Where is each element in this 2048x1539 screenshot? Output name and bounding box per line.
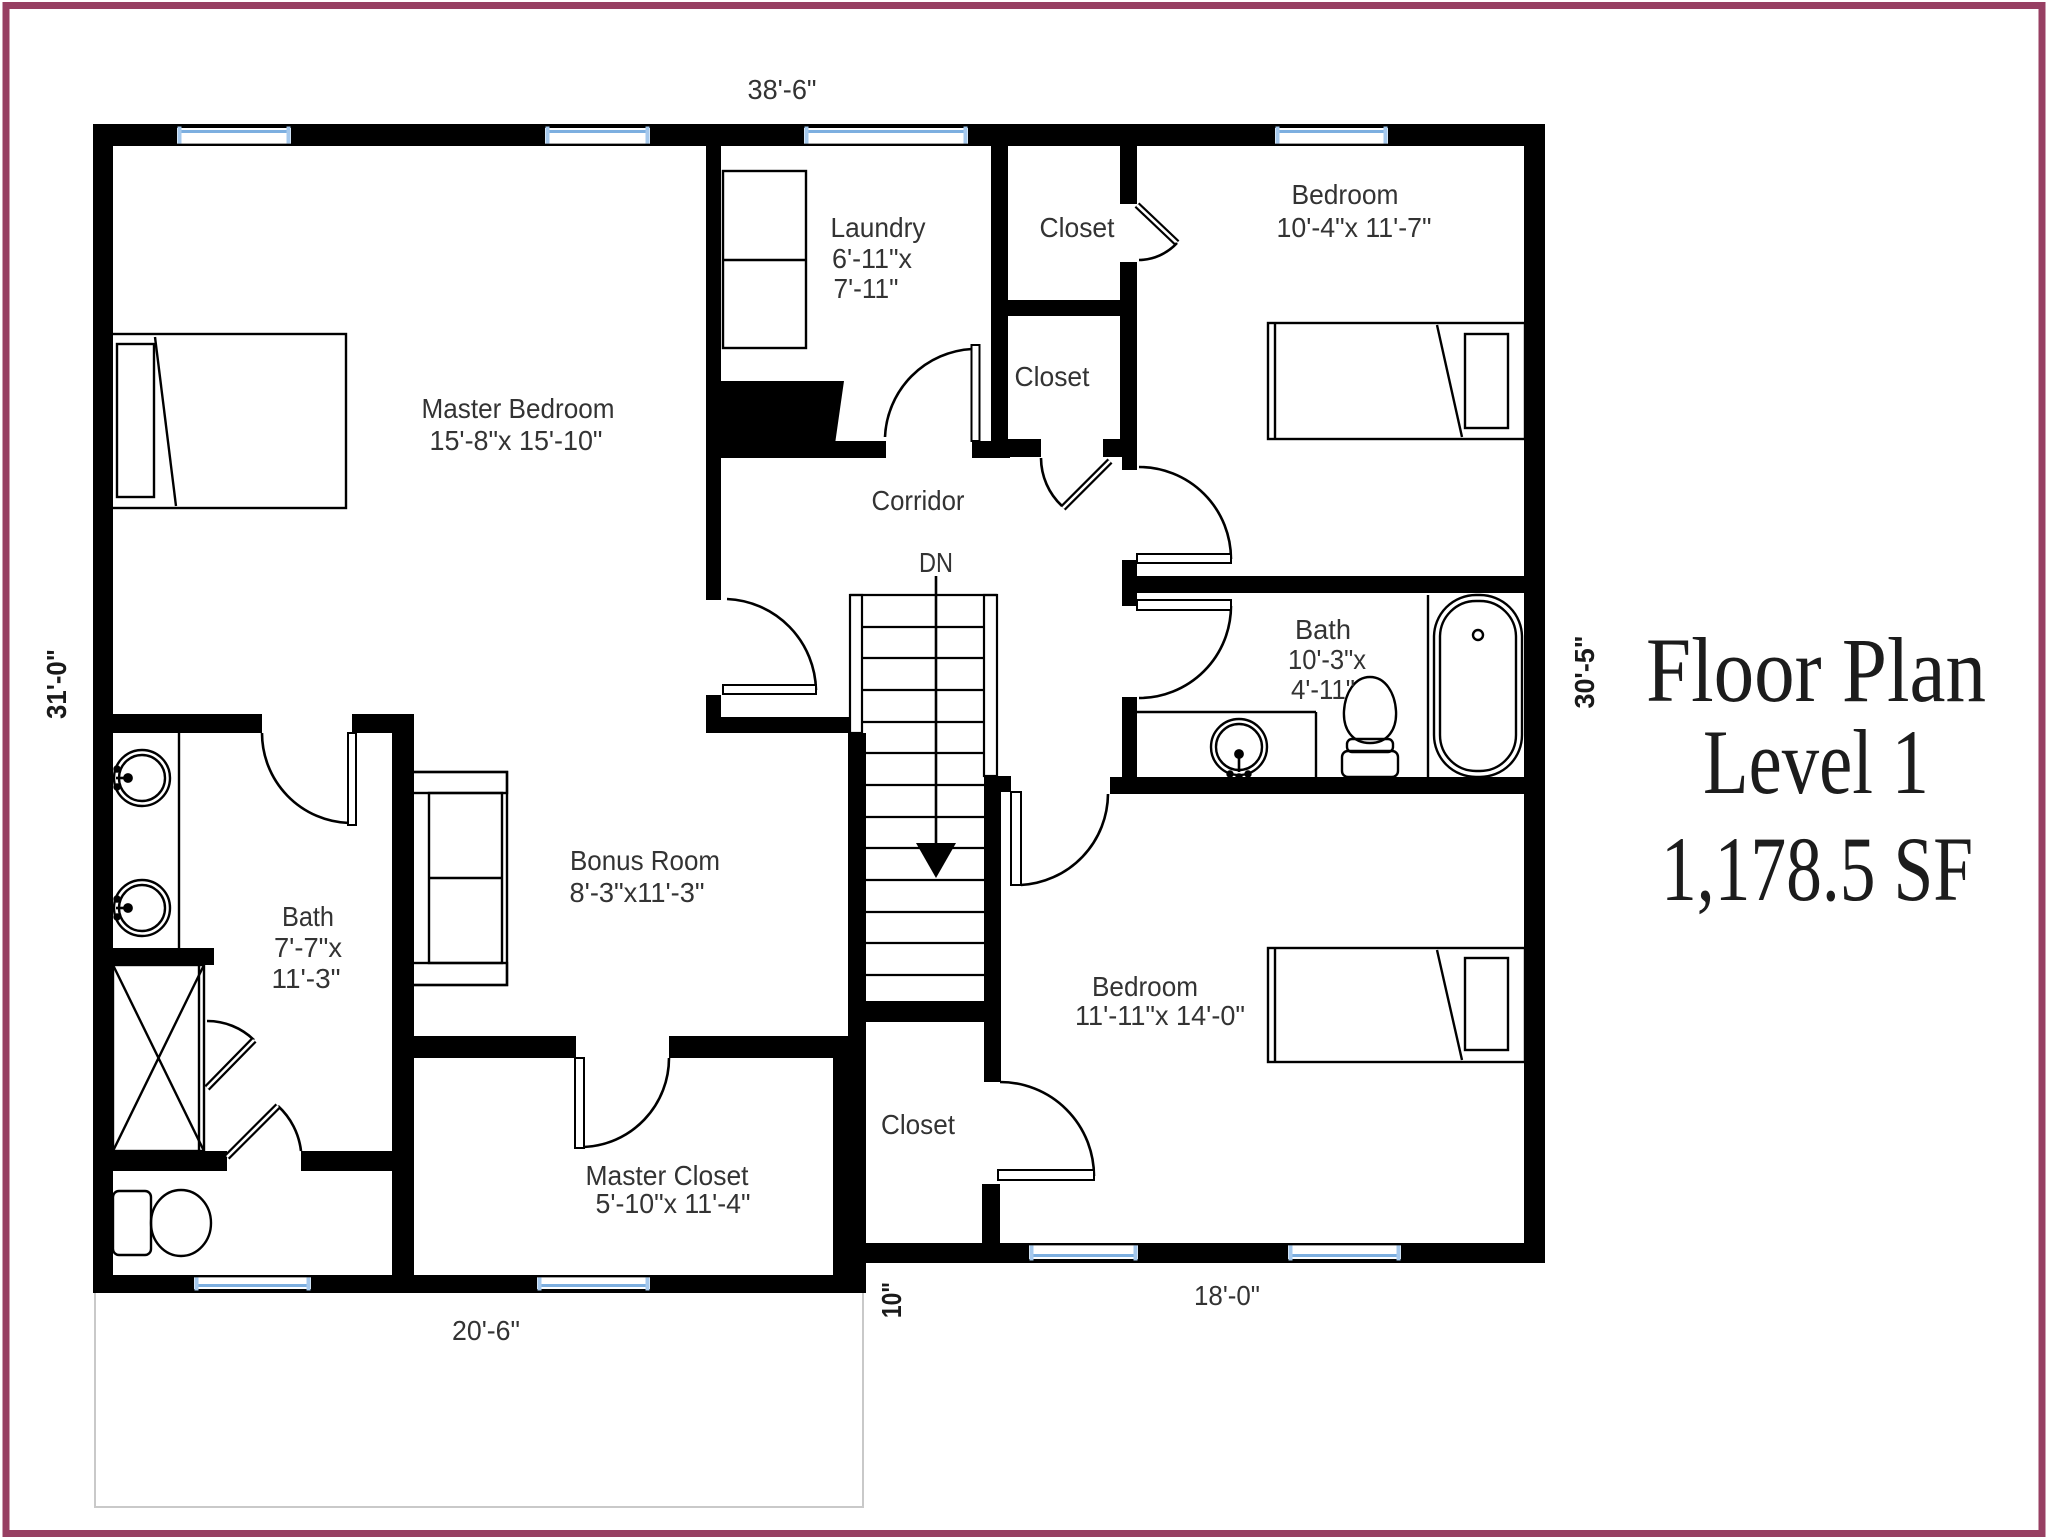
svg-text:Bedroom: Bedroom <box>1292 179 1399 210</box>
svg-text:6'-11"x: 6'-11"x <box>832 243 912 274</box>
svg-text:7'-7"x: 7'-7"x <box>274 932 342 963</box>
svg-text:Bath: Bath <box>1295 614 1351 645</box>
svg-text:Corridor: Corridor <box>872 485 965 516</box>
svg-text:7'-11": 7'-11" <box>834 273 899 304</box>
svg-text:Bonus Room: Bonus Room <box>570 845 720 876</box>
svg-text:31'-0": 31'-0" <box>41 649 72 719</box>
svg-text:Master Closet: Master Closet <box>586 1160 749 1191</box>
svg-text:4'-11": 4'-11" <box>1291 674 1355 705</box>
svg-text:5'-10"x 11'-4": 5'-10"x 11'-4" <box>596 1188 751 1219</box>
svg-text:15'-8"x 15'-10": 15'-8"x 15'-10" <box>430 425 603 456</box>
svg-text:Laundry: Laundry <box>831 212 926 243</box>
svg-text:Closet: Closet <box>1015 361 1090 392</box>
svg-text:10'-3"x: 10'-3"x <box>1288 644 1366 675</box>
svg-text:Floor Plan: Floor Plan <box>1646 619 1986 721</box>
svg-text:8'-3"x11'-3": 8'-3"x11'-3" <box>570 877 705 908</box>
svg-text:30'-5": 30'-5" <box>1569 636 1600 709</box>
svg-text:11'-11"x 14'-0": 11'-11"x 14'-0" <box>1075 1000 1245 1031</box>
svg-text:10'-4"x 11'-7": 10'-4"x 11'-7" <box>1277 212 1432 243</box>
svg-text:Closet: Closet <box>881 1109 955 1140</box>
svg-text:Level 1: Level 1 <box>1703 711 1929 813</box>
svg-text:1,178.5 SF: 1,178.5 SF <box>1661 818 1973 920</box>
svg-text:Bedroom: Bedroom <box>1092 971 1198 1002</box>
svg-text:18'-0": 18'-0" <box>1194 1280 1260 1311</box>
svg-text:Master Bedroom: Master Bedroom <box>422 393 615 424</box>
svg-text:38'-6": 38'-6" <box>748 74 817 105</box>
svg-text:11'-3": 11'-3" <box>272 963 341 994</box>
svg-text:Bath: Bath <box>282 901 334 932</box>
svg-text:DN: DN <box>919 547 953 578</box>
svg-text:20'-6": 20'-6" <box>452 1315 520 1346</box>
svg-text:Closet: Closet <box>1040 212 1115 243</box>
svg-text:10": 10" <box>876 1282 907 1318</box>
